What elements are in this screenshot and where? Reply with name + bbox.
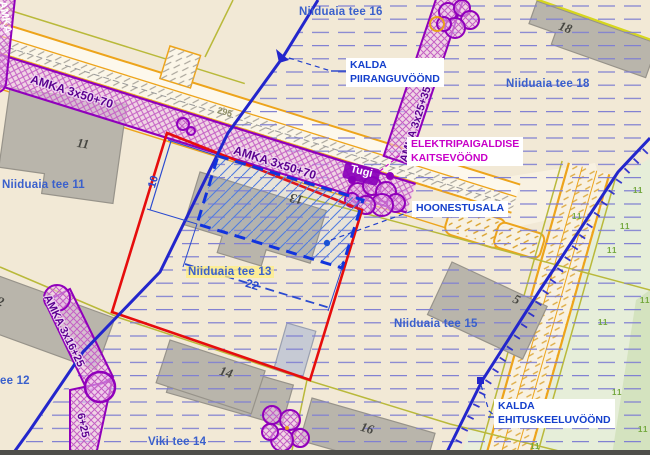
map-frame-edge <box>0 450 650 455</box>
callout-hoonestusala: HOONESTUSALA <box>412 201 508 217</box>
callout-line: ELEKTRIPAIGALDISE <box>411 138 519 152</box>
callout-line: EHITUSKEELUVÖÖND <box>498 414 611 428</box>
callout-elektripaigaldise-kaitsevoond: ELEKTRIPAIGALDISE KAITSEVÖÖND <box>407 137 523 166</box>
callout-line: HOONESTUSALA <box>416 202 504 216</box>
callout-line: KAITSEVÖÖND <box>411 152 519 166</box>
callout-line: KALDA <box>498 400 611 414</box>
callout-kalda-piiranguvoond: KALDA PIIRANGUVÖÖND <box>346 58 444 87</box>
callout-kalda-ehituskeeluvoond: KALDA EHITUSKEELUVÖÖND <box>494 399 615 428</box>
map-canvas[interactable]: Niiduaia tee 16 Niiduaia tee 18 Niiduaia… <box>0 0 650 455</box>
callout-line: PIIRANGUVÖÖND <box>350 73 440 87</box>
callout-line: KALDA <box>350 59 440 73</box>
plan-drawing <box>0 0 650 455</box>
